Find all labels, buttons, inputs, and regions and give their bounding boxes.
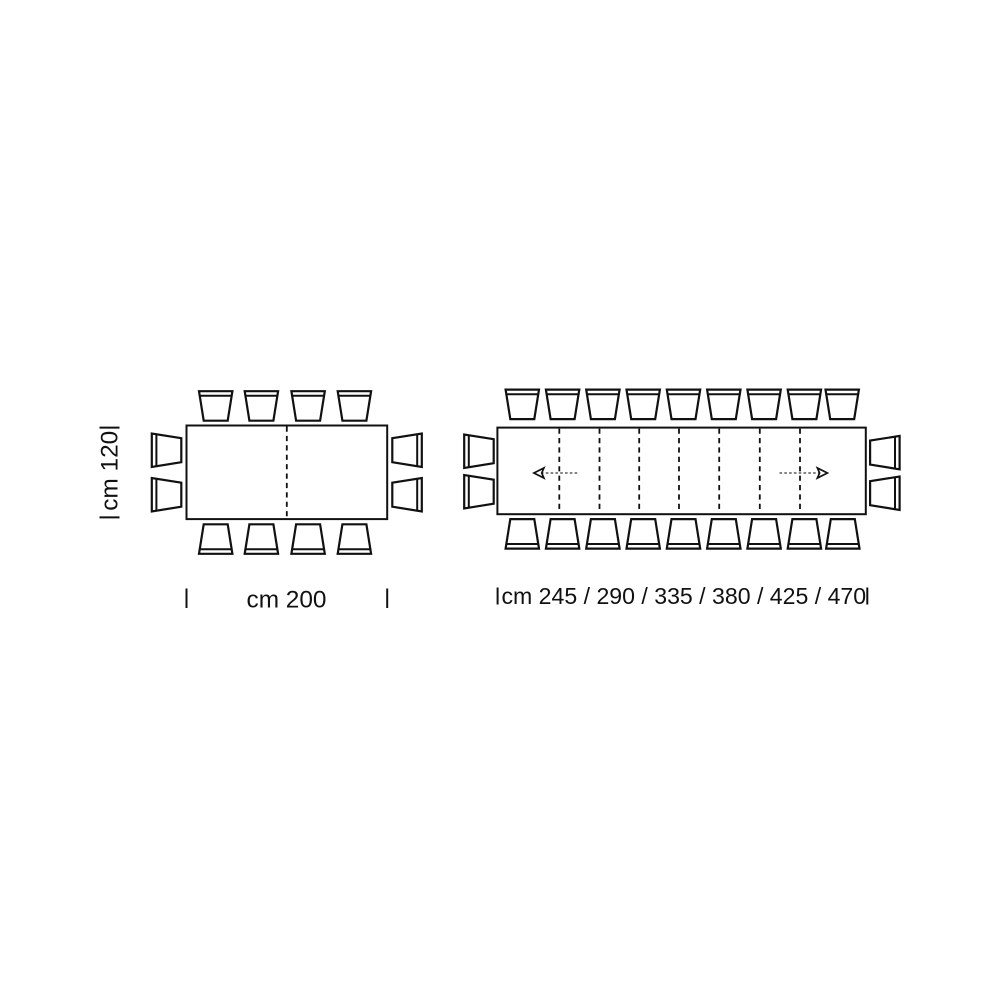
svg-text:cm 245 / 290 / 335 / 380 / 425: cm 245 / 290 / 335 / 380 / 425 / 470 bbox=[501, 583, 866, 609]
svg-text:cm 120: cm 120 bbox=[97, 431, 124, 511]
svg-text:cm 200: cm 200 bbox=[247, 587, 327, 614]
